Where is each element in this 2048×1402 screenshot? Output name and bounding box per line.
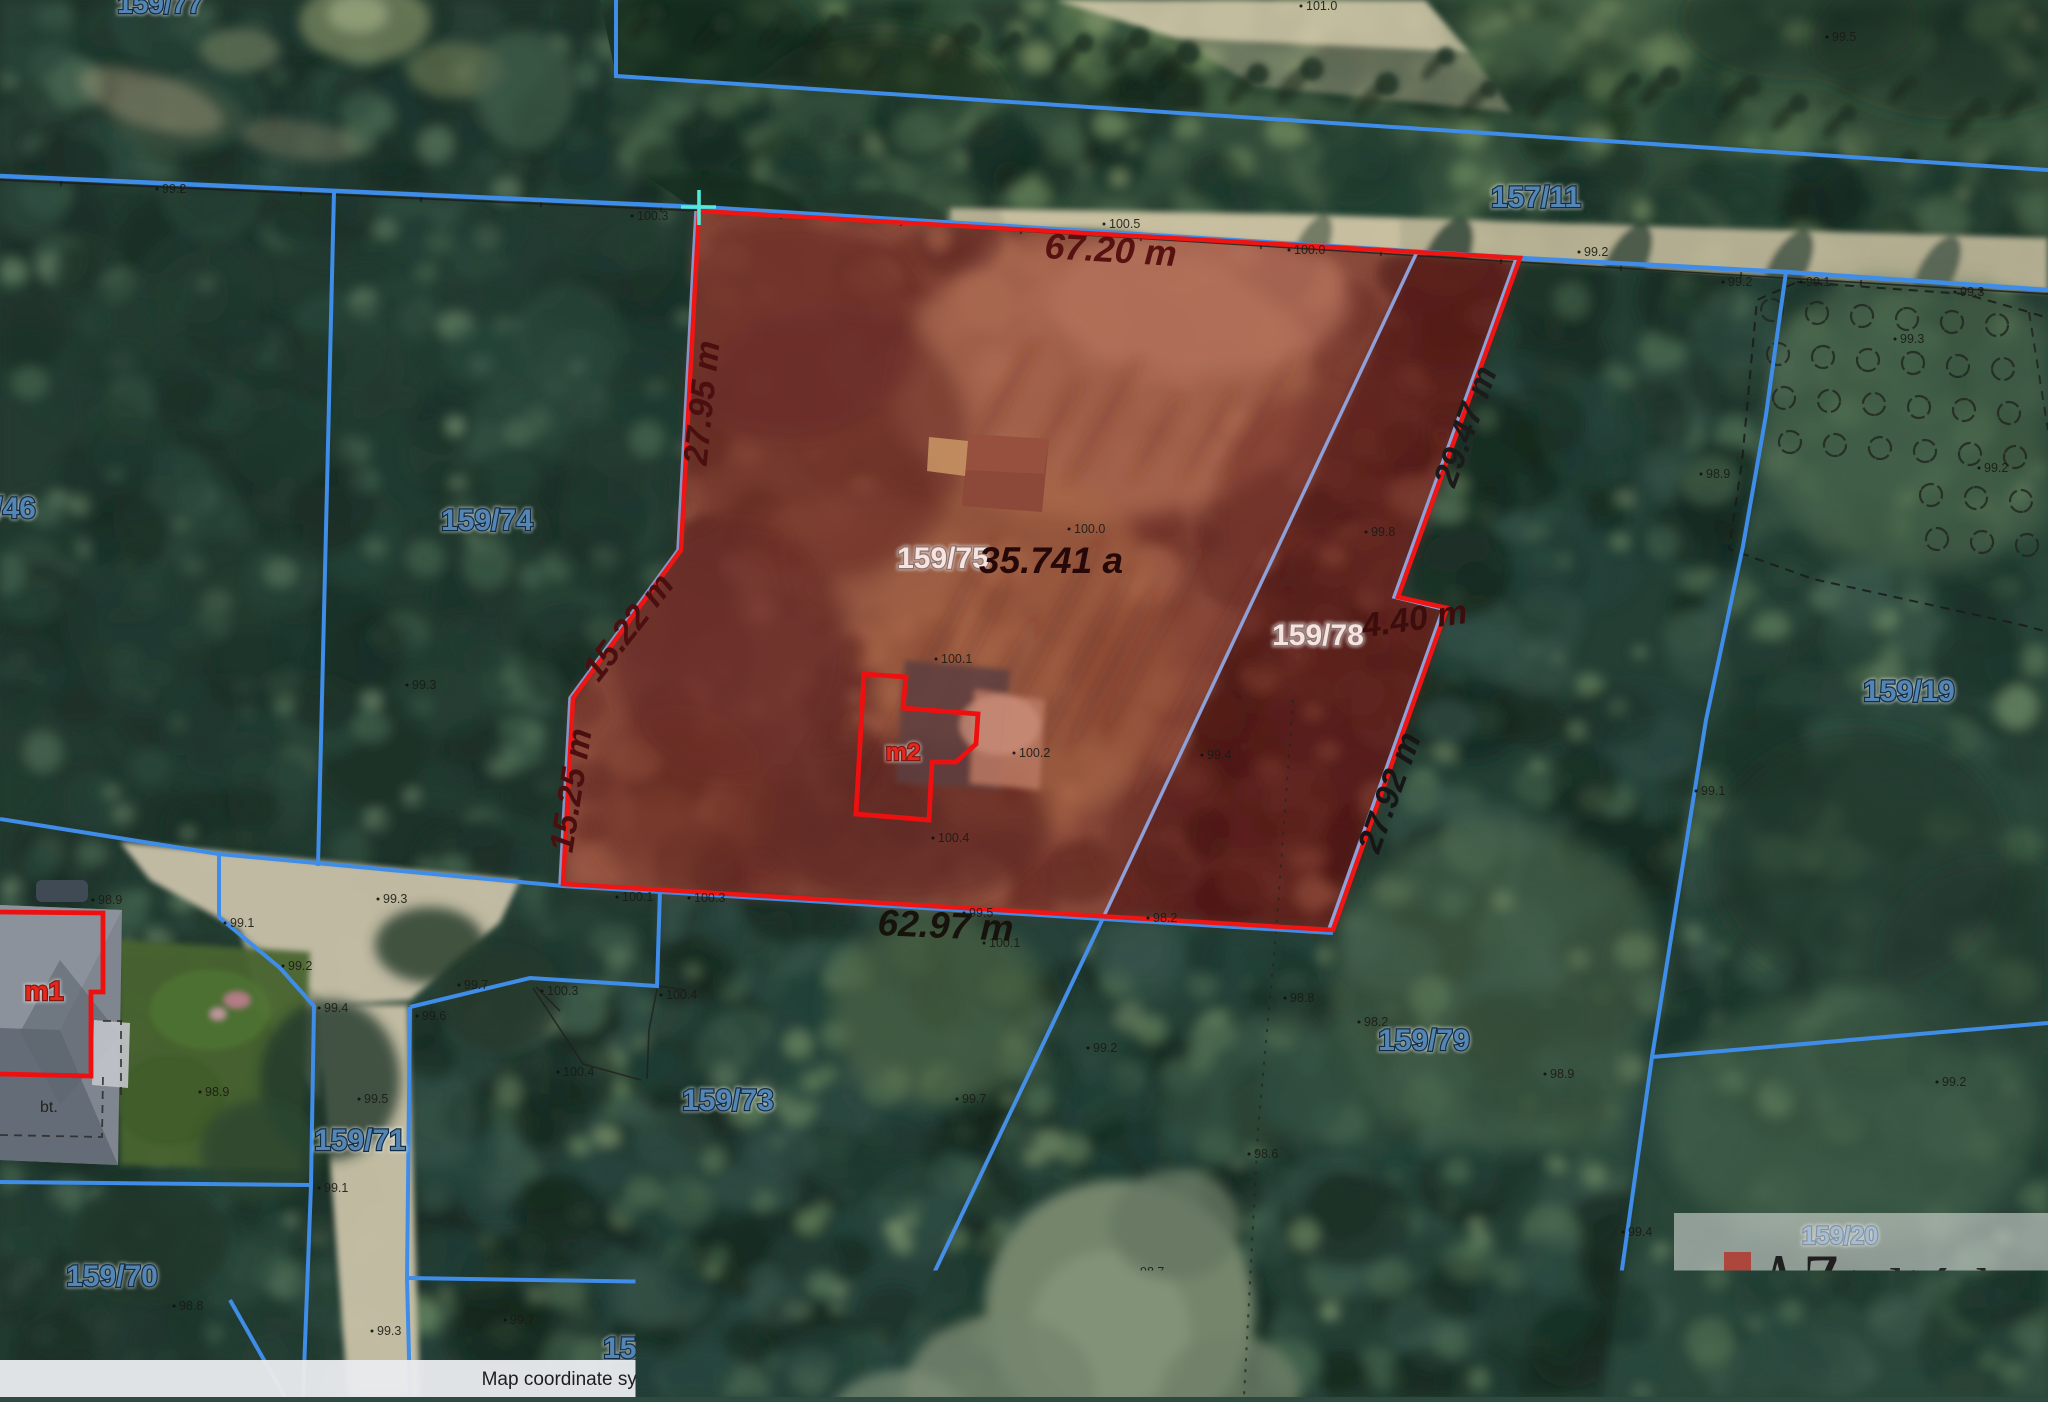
svg-text:99.7: 99.7 <box>464 978 488 992</box>
svg-text:100.2: 100.2 <box>1019 746 1050 760</box>
svg-text:35.741 a: 35.741 a <box>979 540 1123 581</box>
svg-text:159/71: 159/71 <box>314 1124 406 1157</box>
svg-text:99.2: 99.2 <box>1984 461 2008 475</box>
svg-text:m1: m1 <box>24 976 63 1006</box>
svg-text:99.5: 99.5 <box>364 1092 388 1106</box>
svg-text:99.1: 99.1 <box>1701 784 1725 798</box>
svg-text:99.1: 99.1 <box>230 916 254 930</box>
svg-text:99.8: 99.8 <box>1371 525 1395 539</box>
svg-text:100.0: 100.0 <box>1074 522 1105 536</box>
svg-text:100.3: 100.3 <box>694 891 725 905</box>
svg-text:99.4: 99.4 <box>1628 1225 1652 1239</box>
svg-text:99.2: 99.2 <box>1728 275 1752 289</box>
svg-text:157/11: 157/11 <box>1491 181 1581 214</box>
svg-text:100.1: 100.1 <box>622 890 653 904</box>
svg-text:100.4: 100.4 <box>666 988 697 1002</box>
svg-text:98.9: 98.9 <box>205 1085 229 1099</box>
svg-text:98.8: 98.8 <box>1290 991 1314 1005</box>
svg-text:99.7: 99.7 <box>962 1092 986 1106</box>
svg-text:bt.: bt. <box>40 1099 58 1116</box>
svg-text:98.6: 98.6 <box>1254 1147 1278 1161</box>
svg-text:100.4: 100.4 <box>938 831 969 845</box>
svg-text:159/73: 159/73 <box>682 1084 774 1117</box>
svg-text:99.2: 99.2 <box>162 182 186 196</box>
svg-text:Map coordinate system 1992 (EP: Map coordinate system 1992 (EPSG 2180) X… <box>482 1369 1567 1390</box>
svg-text:99.4: 99.4 <box>324 1001 348 1015</box>
svg-text:nieruchomości: nieruchomości <box>1758 1318 2044 1360</box>
svg-text:99.6: 99.6 <box>422 1009 446 1023</box>
svg-text:159/19: 159/19 <box>1863 675 1955 708</box>
svg-text:99.1: 99.1 <box>1806 275 1830 289</box>
svg-text:99.2: 99.2 <box>1942 1075 1966 1089</box>
svg-text:99.4: 99.4 <box>1207 748 1231 762</box>
svg-text:98.8: 98.8 <box>179 1299 203 1313</box>
svg-text:99.2: 99.2 <box>1093 1041 1117 1055</box>
svg-text:99.2: 99.2 <box>1584 245 1608 259</box>
svg-text:99.3: 99.3 <box>383 892 407 906</box>
svg-text:159/75: 159/75 <box>897 542 989 575</box>
svg-text:159/79: 159/79 <box>1378 1024 1470 1057</box>
svg-text:98.9: 98.9 <box>1550 1067 1574 1081</box>
svg-text:98.9: 98.9 <box>1706 467 1730 481</box>
svg-text:99.3: 99.3 <box>1960 285 1984 299</box>
svg-text:m2: m2 <box>886 739 921 766</box>
svg-text:99.2: 99.2 <box>288 959 312 973</box>
svg-text:100.3: 100.3 <box>637 209 668 223</box>
svg-text:99.3: 99.3 <box>412 678 436 692</box>
svg-text:159/77: 159/77 <box>117 0 203 19</box>
svg-text:100.3: 100.3 <box>547 984 578 998</box>
svg-text:99.1: 99.1 <box>324 1181 348 1195</box>
svg-text:100.1: 100.1 <box>941 652 972 666</box>
svg-text:98.2: 98.2 <box>1153 911 1177 925</box>
svg-text:67.20 m: 67.20 m <box>1044 225 1178 274</box>
svg-text:99.7: 99.7 <box>510 1313 534 1327</box>
svg-text:62.97 m: 62.97 m <box>877 902 1014 949</box>
svg-text:98.9: 98.9 <box>98 893 122 907</box>
svg-text:159/74: 159/74 <box>441 504 533 537</box>
svg-text:99.3: 99.3 <box>377 1324 401 1338</box>
svg-text:99.3: 99.3 <box>1900 332 1924 346</box>
svg-text:99.5: 99.5 <box>1832 30 1856 44</box>
svg-text:98.7: 98.7 <box>1140 1265 1164 1279</box>
svg-text:ielińska: ielińska <box>1846 1257 2032 1323</box>
svg-text:159/70: 159/70 <box>66 1260 158 1293</box>
svg-text:100.4: 100.4 <box>563 1065 594 1079</box>
svg-text:159/78: 159/78 <box>1272 619 1364 652</box>
svg-text:101.0: 101.0 <box>1306 0 1337 13</box>
svg-text:/46: /46 <box>0 492 36 525</box>
svg-text:100.0: 100.0 <box>1294 243 1325 257</box>
